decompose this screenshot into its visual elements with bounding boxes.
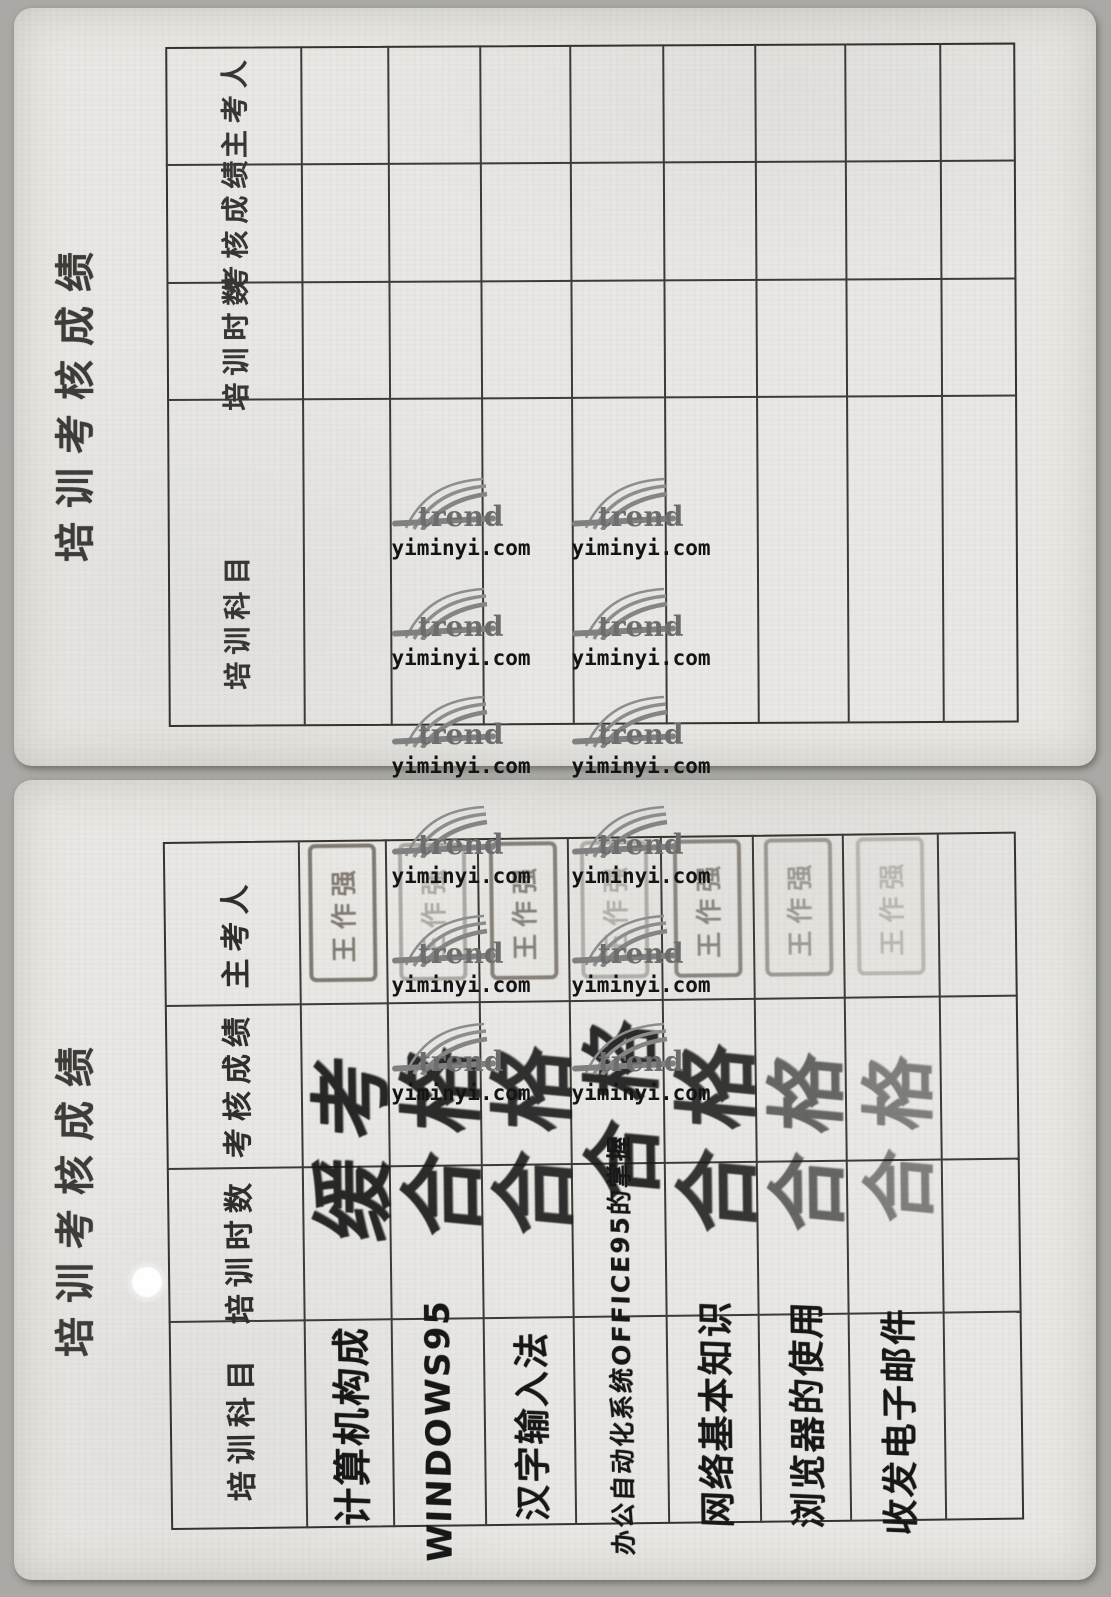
watermark-brand: trend (418, 937, 503, 970)
watermark: trend yiminyi.com (566, 806, 716, 900)
watermark: trend yiminyi.com (386, 588, 536, 682)
watermark-site: yiminyi.com (566, 646, 716, 670)
watermark: trend yiminyi.com (566, 588, 716, 682)
watermark-site: yiminyi.com (566, 1081, 716, 1105)
watermark-brand: trend (418, 610, 503, 643)
watermark-site: yiminyi.com (386, 1081, 536, 1105)
watermark-brand: trend (418, 828, 503, 861)
watermark-brand: trend (418, 500, 503, 533)
watermark: trend yiminyi.com (386, 696, 536, 790)
watermark: trend yiminyi.com (566, 1023, 716, 1117)
watermark-site: yiminyi.com (566, 754, 716, 778)
watermark-layer: trend yiminyi.com trend yiminyi.com tren… (0, 0, 1111, 1597)
watermark-brand: trend (598, 1045, 683, 1078)
watermark-brand: trend (598, 828, 683, 861)
watermark-brand: trend (598, 500, 683, 533)
watermark-site: yiminyi.com (386, 973, 536, 997)
watermark: trend yiminyi.com (566, 696, 716, 790)
watermark-site: yiminyi.com (566, 536, 716, 560)
watermark: trend yiminyi.com (566, 478, 716, 572)
watermark: trend yiminyi.com (386, 1023, 536, 1117)
watermark-site: yiminyi.com (386, 536, 536, 560)
watermark-brand: trend (598, 718, 683, 751)
watermark: trend yiminyi.com (386, 806, 536, 900)
watermark-brand: trend (418, 1045, 503, 1078)
watermark: trend yiminyi.com (386, 478, 536, 572)
watermark-site: yiminyi.com (386, 754, 536, 778)
watermark: trend yiminyi.com (566, 915, 716, 1009)
watermark-site: yiminyi.com (566, 864, 716, 888)
watermark-site: yiminyi.com (386, 646, 536, 670)
watermark-site: yiminyi.com (386, 864, 536, 888)
watermark-site: yiminyi.com (566, 973, 716, 997)
watermark-brand: trend (598, 610, 683, 643)
watermark-brand: trend (418, 718, 503, 751)
scanned-training-record: 培训考核成绩 培训考核成绩 主考人考核成绩培训时数培训科目 主考人考核成绩培训时… (0, 0, 1111, 1597)
watermark-brand: trend (598, 937, 683, 970)
watermark: trend yiminyi.com (386, 915, 536, 1009)
